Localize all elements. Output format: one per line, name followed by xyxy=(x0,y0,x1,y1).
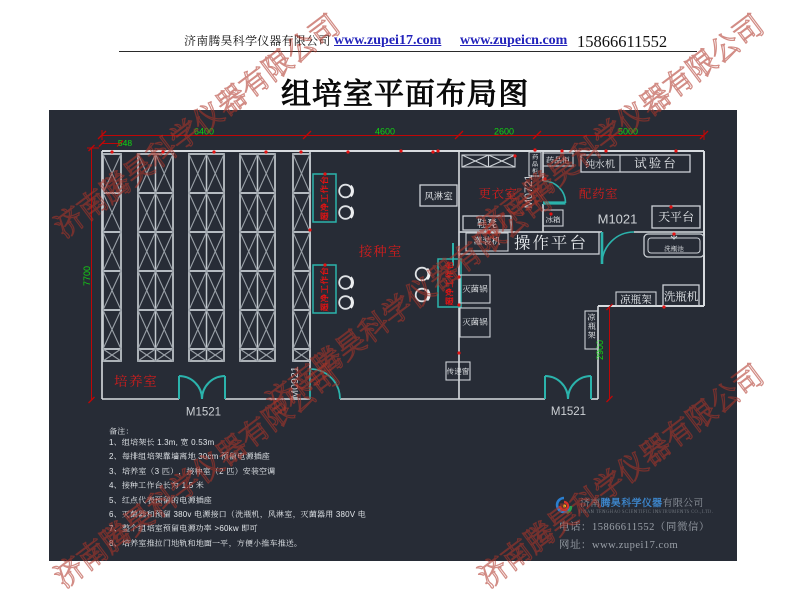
svg-text:M1021: M1021 xyxy=(598,212,638,227)
svg-text:灭菌锅: 灭菌锅 xyxy=(462,316,488,328)
svg-text:超净工作台: 超净工作台 xyxy=(319,266,331,311)
svg-text:7700: 7700 xyxy=(82,266,92,286)
svg-text:M1521: M1521 xyxy=(551,406,586,418)
svg-text:M1521: M1521 xyxy=(186,407,221,419)
svg-text:天平台: 天平台 xyxy=(658,208,694,225)
svg-text:凉瓶架: 凉瓶架 xyxy=(587,312,597,341)
svg-text:风淋室: 风淋室 xyxy=(424,189,453,203)
svg-text:2900: 2900 xyxy=(595,340,605,360)
svg-text:洗瓶机: 洗瓶机 xyxy=(664,289,699,305)
svg-text:试验台: 试验台 xyxy=(634,154,678,172)
svg-text:接种室: 接种室 xyxy=(359,240,403,260)
svg-text:548: 548 xyxy=(118,138,132,148)
svg-text:灭菌锅: 灭菌锅 xyxy=(462,283,488,295)
svg-text:4600: 4600 xyxy=(375,127,395,137)
svg-text:超净工作台: 超净工作台 xyxy=(319,175,331,220)
svg-text:凉瓶架: 凉瓶架 xyxy=(620,292,652,307)
svg-text:培养室: 培养室 xyxy=(114,370,158,390)
svg-text:传递窗: 传递窗 xyxy=(447,366,470,377)
svg-text:2600: 2600 xyxy=(494,127,514,137)
svg-text:洗瓶池: 洗瓶池 xyxy=(664,244,684,253)
svg-text:配药室: 配药室 xyxy=(579,184,618,202)
